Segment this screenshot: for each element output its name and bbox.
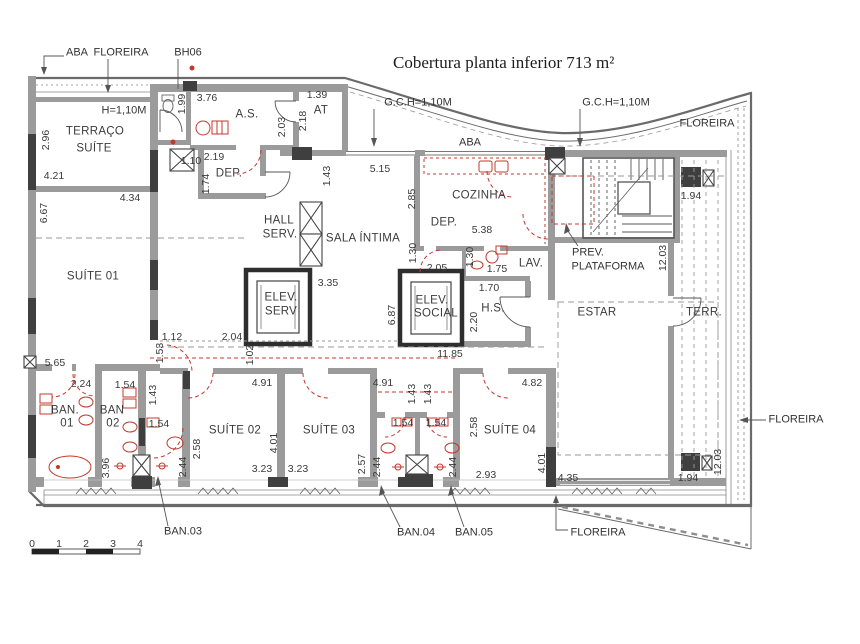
label-dim-244c: 2.44: [448, 457, 459, 477]
prev-plataforma-outline: [552, 176, 594, 224]
label-dim-434: 4.34: [120, 193, 140, 204]
label-dim-112: 1.12: [162, 332, 182, 343]
label-room-estar: ESTAR: [578, 307, 617, 319]
label-dim-219: 2.19: [204, 152, 224, 163]
label-room-as: A.S.: [236, 109, 259, 121]
columns-layer: [28, 81, 701, 489]
label-room-hs: H.S.: [481, 303, 505, 315]
label-dim-565: 5.65: [45, 358, 65, 369]
label-dim-194b: 1.94: [678, 473, 698, 484]
label-room-suite04: SUÍTE 04: [484, 425, 536, 437]
label-callout-floreira-topright: FLOREIRA: [679, 119, 734, 130]
label-dim-401a: 4.01: [269, 433, 280, 453]
label-dim-1185: 11.85: [437, 349, 463, 360]
label-room-lav: LAV.: [519, 258, 543, 270]
label-dim-143c: 1.43: [407, 384, 418, 404]
label-dim-285: 2.85: [407, 189, 418, 209]
label-dim-204: 2.04: [222, 332, 242, 343]
label-callout-ban04: BAN.04: [397, 528, 435, 539]
label-dim-421: 4.21: [44, 171, 64, 182]
label-scale-0: 0: [29, 539, 35, 550]
label-dim-482: 4.82: [522, 378, 542, 389]
label-dim-323b: 3.23: [288, 464, 308, 475]
label-dim-293: 2.93: [476, 470, 496, 481]
label-callout-gch-left: G.C.H=1,10M: [384, 98, 452, 109]
label-room-elev-social2: SOCIAL: [414, 308, 458, 320]
label-dim-515: 5.15: [370, 164, 390, 175]
label-dim-335: 3.35: [318, 278, 338, 289]
label-dim-396: 3.96: [101, 458, 112, 478]
page-title: Cobertura planta inferior 713 m²: [393, 53, 614, 73]
label-dim-244b: 2.44: [372, 457, 383, 477]
label-dim-194a: 1.94: [681, 191, 701, 202]
label-dim-143d: 1.43: [423, 384, 434, 404]
label-callout-gch-right: G.C.H=1,10M: [582, 98, 650, 109]
label-dim-257: 2.57: [357, 454, 368, 474]
label-dim-154d: 1.54: [426, 418, 446, 429]
label-room-terraco-suite: SUÍTE: [76, 143, 111, 155]
label-dim-376: 3.76: [197, 93, 217, 104]
label-dim-154b: 1.54: [149, 419, 169, 430]
label-room-elev-social1: ELEV.: [415, 295, 448, 307]
label-dim-220: 2.20: [469, 312, 480, 332]
label-dim-491a: 4.91: [252, 378, 272, 389]
staircase: [583, 158, 674, 238]
label-callout-floreira-topleft: FLOREIRA: [93, 48, 148, 59]
label-room-cozinha: COZINHA: [452, 190, 506, 202]
label-dim-218: 2.18: [298, 111, 309, 131]
label-room-at: AT: [314, 105, 328, 117]
label-dim-154c: 1.54: [393, 418, 413, 429]
label-dim-244a: 2.44: [178, 457, 189, 477]
label-dim-491b: 4.91: [373, 378, 393, 389]
label-dim-199: 1.99: [177, 94, 188, 114]
label-scale-1: 1: [56, 539, 62, 550]
label-dim-203: 2.03: [277, 117, 288, 137]
label-scale-4: 4: [137, 539, 143, 550]
label-dim-224: 2.24: [71, 379, 91, 390]
label-room-terraco: TERRAÇO: [66, 126, 124, 138]
label-dim-143b: 1.43: [148, 385, 159, 405]
label-dim-1203a: 12.03: [658, 245, 669, 271]
label-room-suite03: SUÍTE 03: [303, 425, 355, 437]
label-callout-floreira-bottom: FLOREIRA: [570, 528, 625, 539]
scale-bar: [32, 549, 140, 554]
label-room-elev-serv1: ELEV.: [264, 292, 297, 304]
label-dim-139: 1.39: [307, 90, 327, 101]
label-room-suite01: SUÍTE 01: [67, 271, 119, 283]
label-dim-154a: 1.54: [115, 380, 135, 391]
label-callout-aba-topleft: ABA: [66, 48, 88, 59]
label-room-ban02b: 02: [106, 418, 119, 430]
label-callout-floreira-right: FLOREIRA: [768, 415, 823, 426]
label-dim-258a: 2.58: [192, 439, 203, 459]
label-dim-153: 1.53: [155, 343, 166, 363]
label-dim-175: 1.75: [487, 264, 507, 275]
label-scale-2: 2: [83, 539, 89, 550]
label-room-ban02a: BAN: [100, 405, 125, 417]
label-callout-prev: PREV.: [572, 248, 604, 259]
label-dim-110: 1.10: [181, 156, 201, 167]
label-dim-538: 5.38: [472, 225, 492, 236]
label-callout-aba-mid: ABA: [459, 138, 481, 149]
label-room-sala-intima: SALA ÍNTIMA: [326, 233, 400, 245]
label-callout-bh06: BH06: [174, 48, 202, 59]
label-dim-130b: 1.30: [465, 247, 476, 267]
label-callout-ban05: BAN.05: [455, 528, 493, 539]
label-callout-ban03: BAN.03: [164, 527, 202, 538]
walls-layer: [28, 76, 727, 492]
label-dim-102: 1.02: [245, 345, 256, 365]
label-dim-667: 6.67: [39, 203, 50, 223]
label-dim-205: 2.05: [427, 263, 447, 274]
label-dim-258b: 2.58: [469, 417, 480, 437]
label-dim-687: 6.87: [387, 305, 398, 325]
floor-plan-page: Cobertura planta inferior 713 m² ABAFLOR…: [0, 0, 860, 644]
label-room-suite02: SUÍTE 02: [209, 425, 261, 437]
label-room-hall: HALL: [264, 215, 294, 227]
label-dim-323a: 3.23: [252, 464, 272, 475]
label-room-hall-serv: SERV.: [263, 229, 298, 241]
label-dim-1203b: 12.03: [713, 449, 724, 475]
railing-marks: [76, 488, 656, 494]
label-room-dep1: DEP.: [216, 168, 243, 180]
label-callout-h110: H=1,10M: [102, 106, 147, 117]
label-dim-401b: 4.01: [537, 453, 548, 473]
label-dim-435: 4.35: [558, 473, 578, 484]
label-dim-174: 1.74: [201, 174, 212, 194]
label-room-terr: TERR.: [686, 307, 722, 319]
label-room-ban01a: BAN.: [51, 405, 79, 417]
label-room-elev-serv2: SERV: [265, 306, 297, 318]
label-room-dep2: DEP.: [431, 217, 458, 229]
label-dim-143a: 1.43: [322, 166, 333, 186]
label-dim-170: 1.70: [479, 283, 499, 294]
label-dim-130a: 1.30: [408, 243, 419, 263]
label-scale-3: 3: [110, 539, 116, 550]
label-room-ban01b: 01: [60, 418, 73, 430]
label-callout-plataforma: PLATAFORMA: [572, 262, 645, 273]
label-dim-296: 2.96: [41, 130, 52, 150]
